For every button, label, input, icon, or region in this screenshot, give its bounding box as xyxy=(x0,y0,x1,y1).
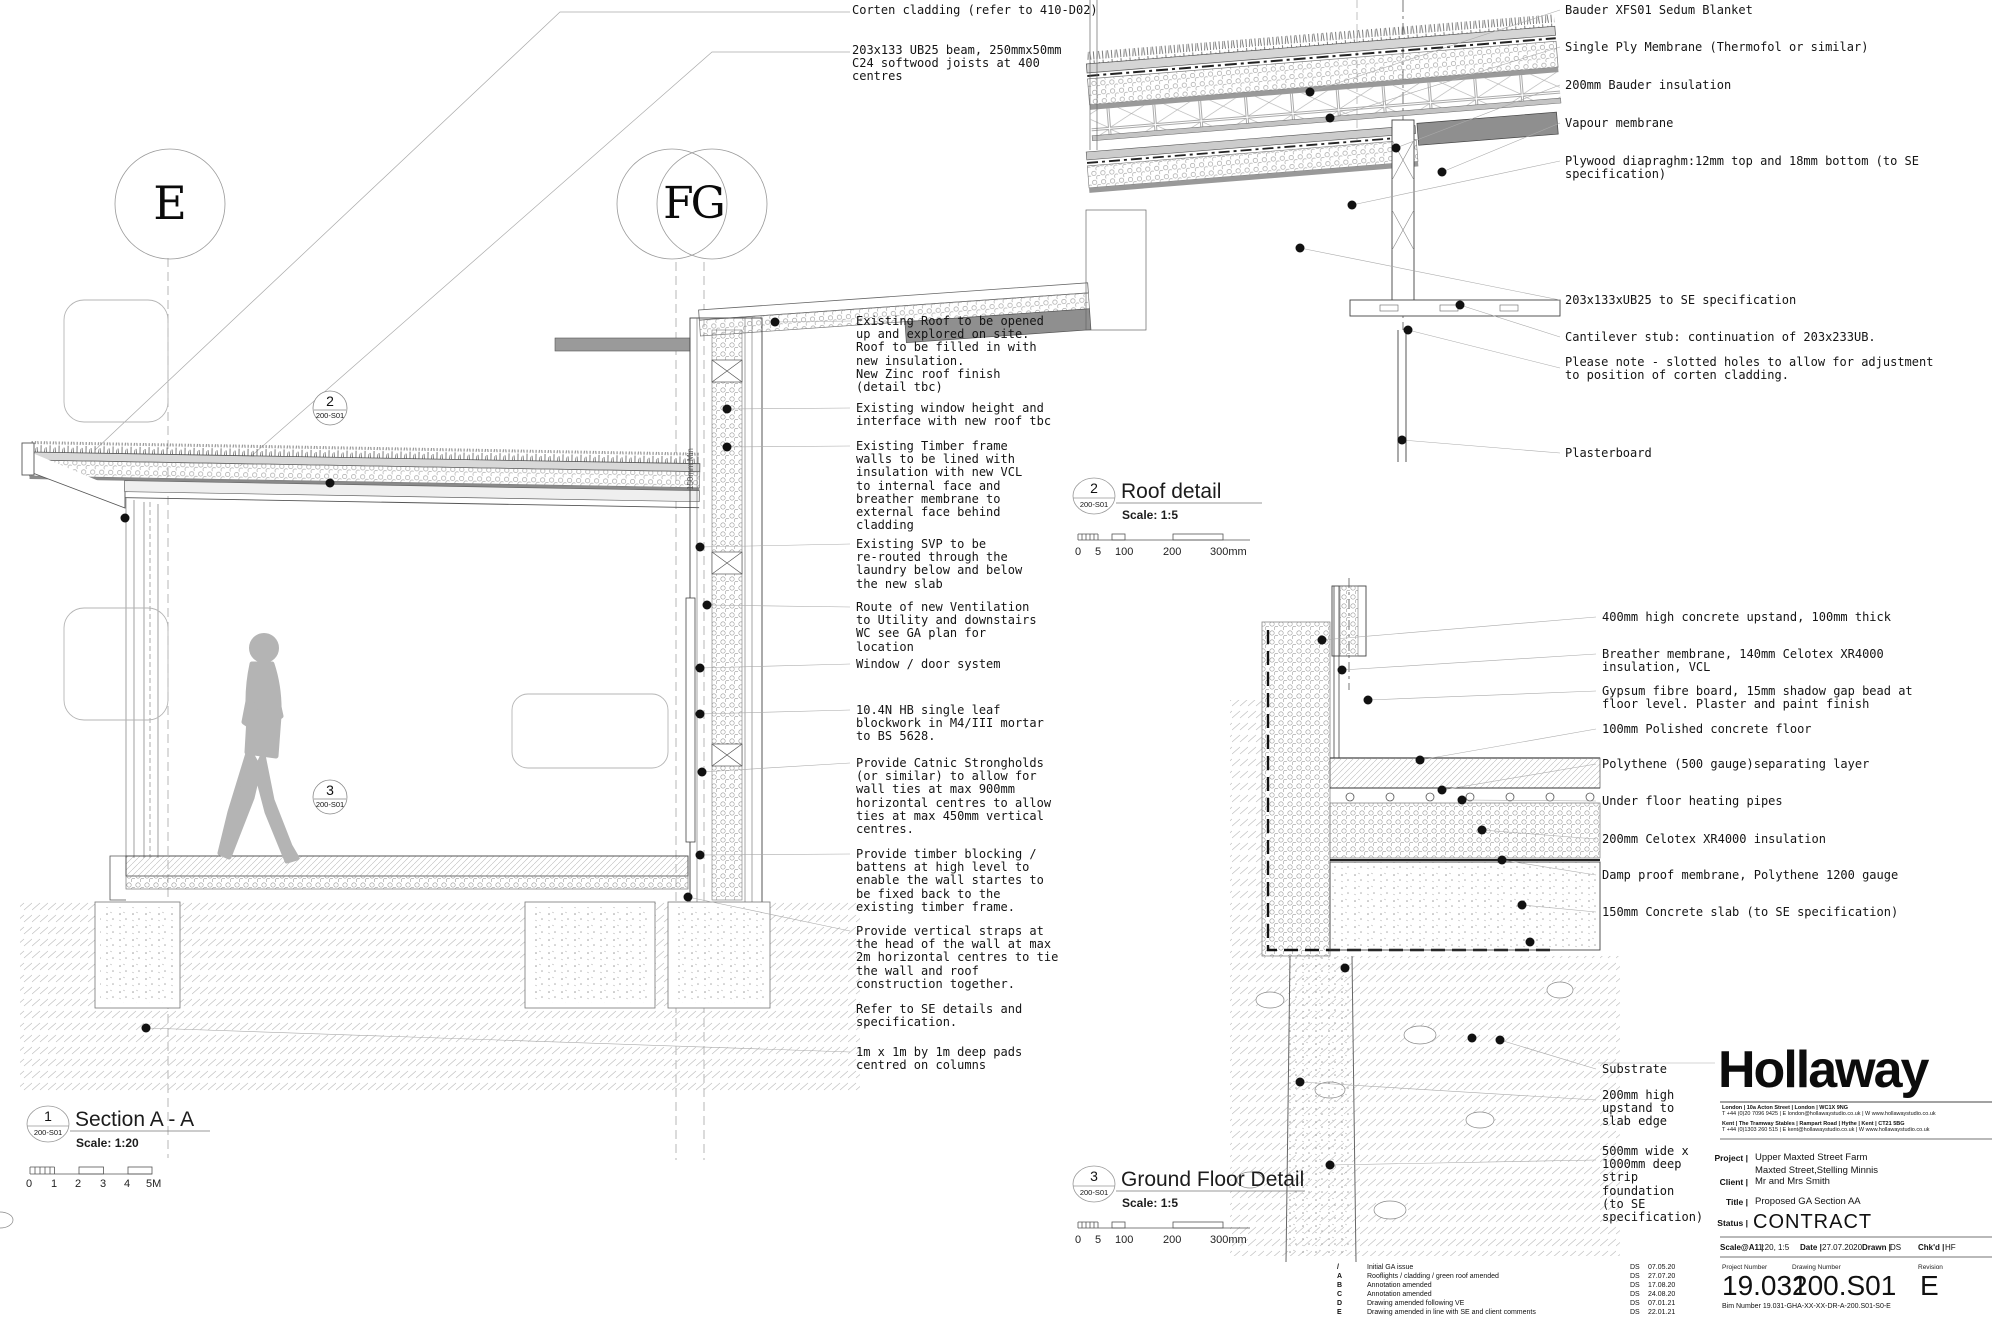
bim-number-value: 19.031-GHA-XX-XX-DR-A-200.S01-S0-E xyxy=(1763,1303,1891,1310)
revision-row: D Drawing amended following VE DS 07.01.… xyxy=(1337,1300,1737,1309)
scalebar-m-2: 2 xyxy=(75,1178,81,1190)
callout-roof-detail-number: 2 xyxy=(309,393,351,409)
note-ventilation: Route of new Ventilation to Utility and … xyxy=(856,601,1086,654)
note-window-height: Existing window height and interface wit… xyxy=(856,402,1086,428)
date-value: 27.07.2020 xyxy=(1822,1243,1862,1252)
revision-row: A Rooflights / cladding / green roof ame… xyxy=(1337,1273,1737,1282)
revision-letter: E xyxy=(1337,1309,1342,1316)
note-blockwork: 10.4N HB single leaf blockwork in M4/III… xyxy=(856,704,1086,744)
dim-150mm-min: 150mm Min xyxy=(686,430,695,490)
note-concrete-upstand: 400mm high concrete upstand, 100mm thick xyxy=(1602,611,1992,624)
note-corten-cladding: Corten cladding (refer to 410-D02) xyxy=(852,4,1132,17)
revision-value: E xyxy=(1920,1270,1939,1302)
note-window-door: Window / door system xyxy=(856,658,1086,671)
note-breather-membrane: Breather membrane, 140mm Celotex XR4000 … xyxy=(1602,648,1992,674)
revision-row: B Annotation amended DS 17.08.20 xyxy=(1337,1282,1737,1291)
revision-by: DS xyxy=(1630,1264,1640,1271)
client-value: Mr and Mrs Smith xyxy=(1755,1176,1830,1187)
person-silhouette xyxy=(220,634,297,861)
chkd-value: HF xyxy=(1945,1243,1956,1252)
note-ub25-beam: 203x133 UB25 beam, 250mmx50mm C24 softwo… xyxy=(852,44,1102,84)
note-gypsum-board: Gypsum fibre board, 15mm shadow gap bead… xyxy=(1602,685,1992,711)
note-celotex-insulation: 200mm Celotex XR4000 insulation xyxy=(1602,833,1992,846)
note-svp: Existing SVP to be re-routed through the… xyxy=(856,538,1086,591)
view-roof-scale: Scale: 1:5 xyxy=(1122,508,1178,522)
scalebar-m-1: 1 xyxy=(51,1178,57,1190)
scalebar-mm-floor-200: 200 xyxy=(1163,1234,1181,1246)
view-section-scale: Scale: 1:20 xyxy=(76,1136,139,1150)
view-roof-title: Roof detail xyxy=(1121,480,1221,504)
revision-by: DS xyxy=(1630,1300,1640,1307)
callout-floor-detail-number: 3 xyxy=(309,782,351,798)
view-section-ref: 200-S01 xyxy=(27,1128,69,1137)
scalebar-m-4: 4 xyxy=(124,1178,130,1190)
status-label: Status | xyxy=(1678,1218,1748,1228)
revision-description: Rooflights / cladding / green roof amend… xyxy=(1367,1273,1499,1280)
revision-letter: B xyxy=(1337,1282,1342,1289)
note-slotted-holes: Please note - slotted holes to allow for… xyxy=(1565,356,1965,382)
note-vertical-straps: Provide vertical straps at the head of t… xyxy=(856,925,1086,991)
scalebar-m-5: 5M xyxy=(146,1178,161,1190)
drawn-value: DS xyxy=(1890,1243,1901,1252)
note-timber-frame: Existing Timber frame walls to be lined … xyxy=(856,440,1086,532)
revision-row: E Drawing amended in line with SE and cl… xyxy=(1337,1309,1737,1318)
title-value: Proposed GA Section AA xyxy=(1755,1196,1861,1207)
chkd-label: Chk'd | xyxy=(1918,1243,1944,1252)
revision-date: 22.01.21 xyxy=(1648,1309,1675,1316)
note-existing-roof: Existing Roof to be opened up and explor… xyxy=(856,315,1086,394)
note-refer-se: Refer to SE details and specification. xyxy=(856,1003,1086,1029)
grid-bubble-fg: FG xyxy=(658,178,728,229)
address-london-line2: T +44 (0)20 7096 9425 | E london@hollawa… xyxy=(1722,1111,1936,1117)
company-logo: Hollaway xyxy=(1718,1040,1927,1100)
note-ub25-se: 203x133xUB25 to SE specification xyxy=(1565,294,1965,307)
view-floor-number: 3 xyxy=(1073,1168,1115,1184)
revision-by: DS xyxy=(1630,1282,1640,1289)
revision-description: Drawing amended in line with SE and clie… xyxy=(1367,1309,1536,1316)
view-floor-title: Ground Floor Detail xyxy=(1121,1168,1304,1192)
view-section-number: 1 xyxy=(27,1108,69,1124)
note-timber-blocking: Provide timber blocking / battens at hig… xyxy=(856,848,1086,914)
revision-by: DS xyxy=(1630,1273,1640,1280)
revision-date: 24.08.20 xyxy=(1648,1291,1675,1298)
scalebar-mm-floor-5: 5 xyxy=(1095,1234,1101,1246)
project-value: Upper Maxted Street Farm xyxy=(1755,1152,1867,1163)
scalebar-mm-floor-100: 100 xyxy=(1115,1234,1133,1246)
note-dpm: Damp proof membrane, Polythene 1200 gaug… xyxy=(1602,869,1992,882)
note-bauder-insulation: 200mm Bauder insulation xyxy=(1565,79,1965,92)
revision-letter: A xyxy=(1337,1273,1342,1280)
revision-by: DS xyxy=(1630,1291,1640,1298)
scale-value: 1:20, 1:5 xyxy=(1758,1243,1789,1252)
note-catnic: Provide Catnic Strongholds (or similar) … xyxy=(856,757,1086,836)
scalebar-mm-floor-0: 0 xyxy=(1075,1234,1081,1246)
revision-by: DS xyxy=(1630,1309,1640,1316)
scalebar-mm-roof-0: 0 xyxy=(1075,546,1081,558)
status-value: CONTRACT xyxy=(1753,1211,1872,1234)
revision-letter: D xyxy=(1337,1300,1342,1307)
note-cantilever-stub: Cantilever stub: continuation of 203x233… xyxy=(1565,331,1965,344)
scalebar-mm-floor-300: 300mm xyxy=(1210,1234,1247,1246)
drawing-sheet: Corten cladding (refer to 410-D02) 203x1… xyxy=(0,0,2000,1320)
project-value-line2: Maxted Street,Stelling Minnis xyxy=(1755,1165,1878,1176)
grid-bubble-e: E xyxy=(140,176,200,230)
note-substrate: Substrate xyxy=(1602,1063,1732,1076)
revision-date: 07.01.21 xyxy=(1648,1300,1675,1307)
revision-row: / Initial GA issue DS 07.05.20 xyxy=(1337,1264,1737,1273)
revision-description: Initial GA issue xyxy=(1367,1264,1413,1271)
note-concrete-slab: 150mm Concrete slab (to SE specification… xyxy=(1602,906,1992,919)
bim-number-row: Bim Number 19.031-GHA-XX-XX-DR-A-200.S01… xyxy=(1722,1303,1891,1310)
note-upstand-edge: 200mm high upstand to slab edge xyxy=(1602,1089,1732,1129)
client-label: Client | xyxy=(1678,1177,1748,1187)
view-floor-scale: Scale: 1:5 xyxy=(1122,1196,1178,1210)
scalebar-mm-roof-200: 200 xyxy=(1163,546,1181,558)
note-pads: 1m x 1m by 1m deep pads centred on colum… xyxy=(856,1046,1086,1072)
note-plywood-diaphragm: Plywood diapraghm:12mm top and 18mm bott… xyxy=(1565,155,1965,181)
scalebar-mm-roof-5: 5 xyxy=(1095,546,1101,558)
scalebar-mm-roof-300: 300mm xyxy=(1210,546,1247,558)
revision-row: C Annotation amended DS 24.08.20 xyxy=(1337,1291,1737,1300)
note-single-ply: Single Ply Membrane (Thermofol or simila… xyxy=(1565,41,1965,54)
drawn-label: Drawn | xyxy=(1862,1243,1891,1252)
date-label: Date | xyxy=(1800,1243,1822,1252)
scalebar-m-3: 3 xyxy=(100,1178,106,1190)
note-sedum-blanket: Bauder XFS01 Sedum Blanket xyxy=(1565,4,1965,17)
note-ufh-pipes: Under floor heating pipes xyxy=(1602,795,1992,808)
scalebar-m-0: 0 xyxy=(26,1178,32,1190)
revision-description: Drawing amended following VE xyxy=(1367,1300,1464,1307)
view-section-title: Section A - A xyxy=(75,1108,194,1132)
scale-label: Scale@A1 | xyxy=(1720,1243,1763,1252)
note-vapour-membrane: Vapour membrane xyxy=(1565,117,1965,130)
scalebar-mm-roof-100: 100 xyxy=(1115,546,1133,558)
revision-description: Annotation amended xyxy=(1367,1282,1432,1289)
address-kent-line2: T +44 (0)1303 260 515 | E kent@hollaways… xyxy=(1722,1127,1930,1133)
revision-description: Annotation amended xyxy=(1367,1291,1432,1298)
revision-letter: C xyxy=(1337,1291,1342,1298)
revision-letter: / xyxy=(1337,1264,1339,1271)
view-roof-number: 2 xyxy=(1073,480,1115,496)
revision-date: 27.07.20 xyxy=(1648,1273,1675,1280)
drawing-number: 200.S01 xyxy=(1792,1270,1896,1302)
revision-date: 07.05.20 xyxy=(1648,1264,1675,1271)
revision-date: 17.08.20 xyxy=(1648,1282,1675,1289)
note-polished-floor: 100mm Polished concrete floor xyxy=(1602,723,1992,736)
callout-floor-detail-ref: 200-S01 xyxy=(309,800,351,809)
view-roof-ref: 200-S01 xyxy=(1073,500,1115,509)
note-polythene-layer: Polythene (500 gauge)separating layer xyxy=(1602,758,1992,771)
title-label: Title | xyxy=(1678,1197,1748,1207)
view-floor-ref: 200-S01 xyxy=(1073,1188,1115,1197)
project-label: Project | xyxy=(1678,1153,1748,1163)
note-plasterboard: Plasterboard xyxy=(1565,447,1965,460)
callout-roof-detail-ref: 200-S01 xyxy=(309,411,351,420)
